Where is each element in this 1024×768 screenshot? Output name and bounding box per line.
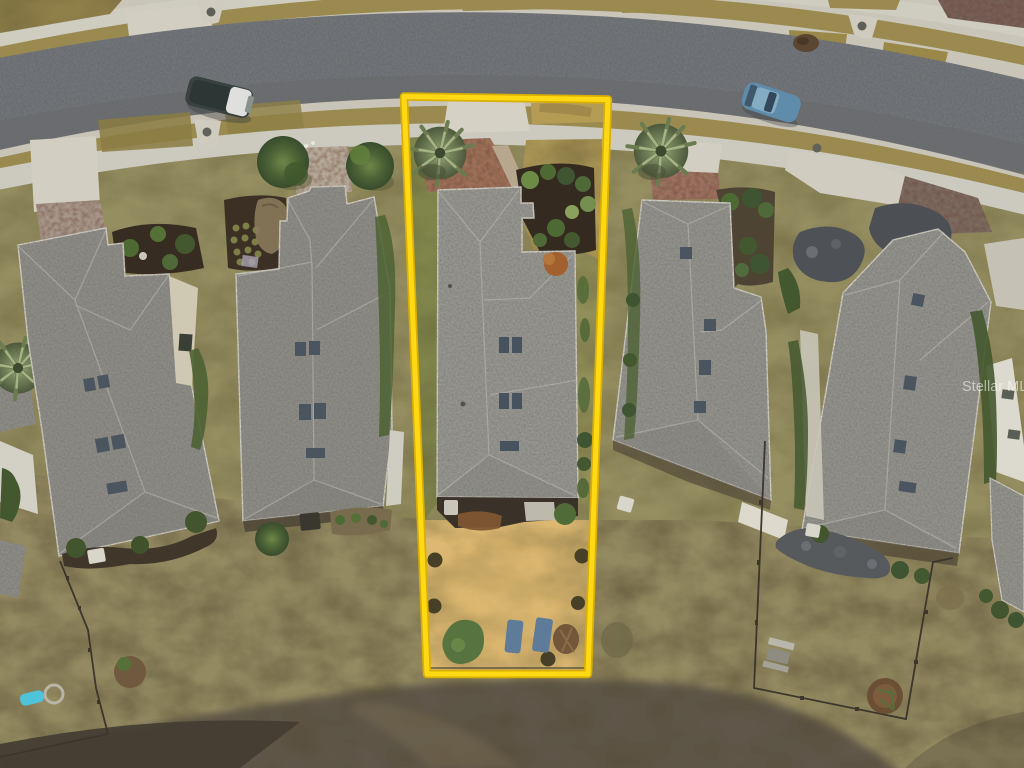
svg-text:Stellar MLS: Stellar MLS — [962, 379, 1024, 395]
